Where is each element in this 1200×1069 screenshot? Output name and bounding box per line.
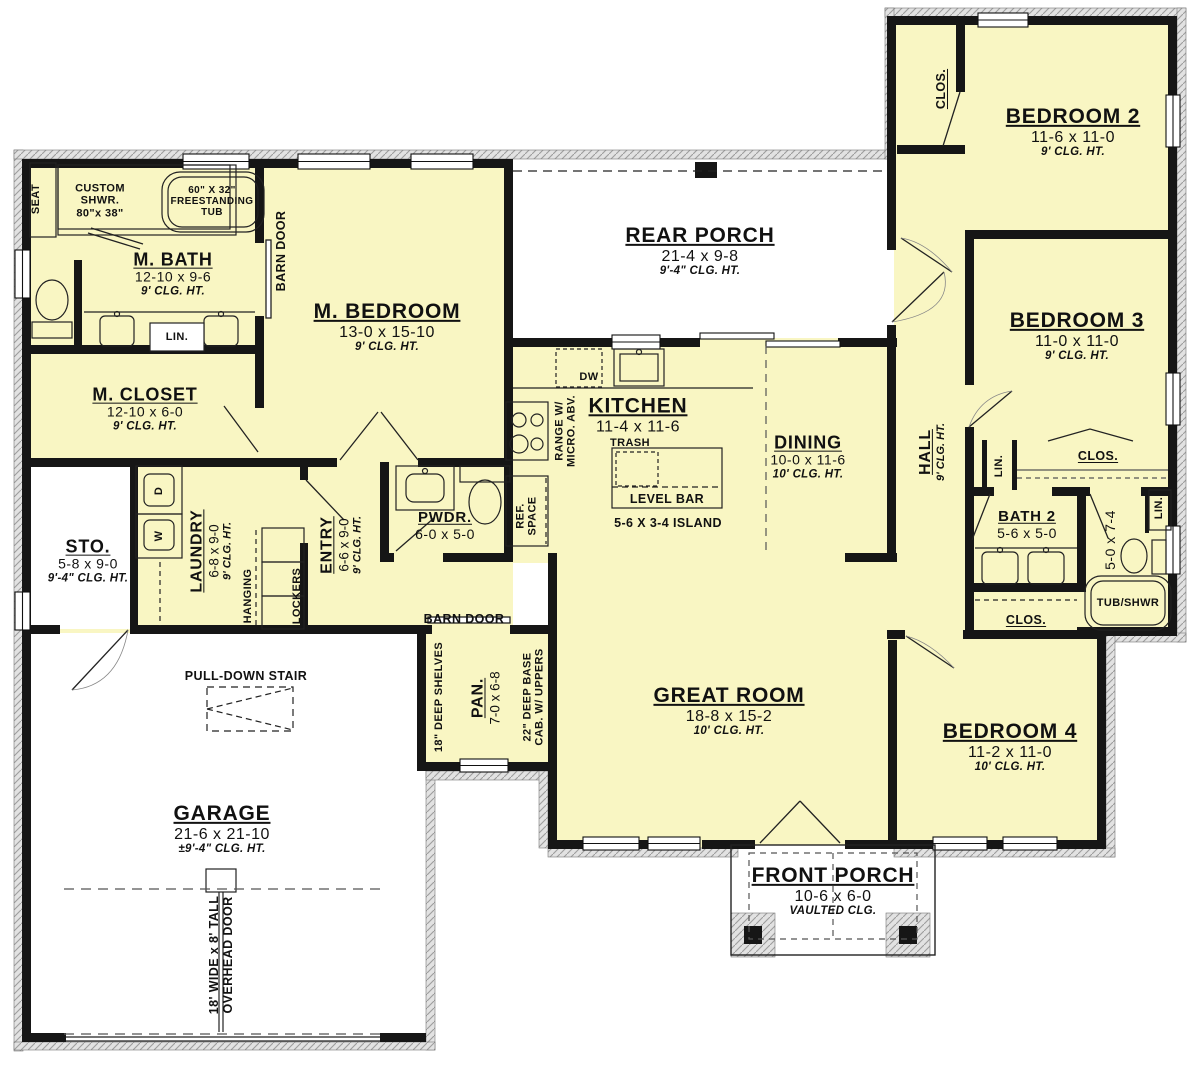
room-label-pan: PAN. 7-0 x 6-8 [469, 671, 502, 724]
tub-shwr-label: TUB/SHWR [1097, 597, 1159, 609]
linen-label-mbath: LIN. [166, 331, 188, 343]
room-label-sto: STO. 5-8 x 9-0 9'-4" CLG. HT. [48, 537, 129, 586]
seat-label: SEAT [30, 184, 42, 214]
room-label-hall: HALL 9' CLG. HT. [917, 423, 947, 481]
dishwasher-label: DW [579, 371, 598, 383]
pull-down-stair-label: PULL-DOWN STAIR [185, 669, 307, 683]
linen-label-bedroom3: LIN. [993, 455, 1005, 477]
room-label-dining: DINING 10-0 x 11-6 10' CLG. HT. [770, 433, 845, 482]
washer-label: W [153, 531, 165, 542]
window [460, 759, 508, 772]
window [583, 837, 639, 850]
barn-door-label-pan: BARN DOOR [424, 612, 505, 626]
window [1166, 526, 1180, 574]
island-label: 5-6 X 3-4 ISLAND [614, 516, 722, 530]
room-label-bedroom4: BEDROOM 4 11-2 x 11-0 10' CLG. HT. [943, 720, 1077, 774]
room-label-m-closet: M. CLOSET 12-10 x 6-0 9' CLG. HT. [92, 385, 197, 434]
tub-label: 60" X 32" FREESTANDING TUB [171, 185, 254, 219]
range-label: RANGE W/ MICRO. ABV. [554, 395, 579, 467]
room-label-garage: GARAGE 21-6 x 21-10 ±9'-4" CLG. HT. [174, 802, 271, 856]
hanging-label: HANGING [242, 569, 254, 624]
window [612, 335, 660, 349]
closet-label-bedroom2: CLOS. [934, 69, 948, 109]
window [978, 13, 1028, 27]
dryer-label: D [153, 487, 165, 495]
window [15, 592, 30, 630]
window [15, 250, 30, 298]
lockers-label: LOCKERS [291, 568, 303, 625]
level-bar-label: LEVEL BAR [630, 492, 704, 506]
window [1003, 837, 1057, 850]
trash-label: TRASH [610, 437, 650, 449]
overhead-door-label: 18' WIDE x 8' TALL OVERHEAD DOOR [207, 896, 235, 1015]
room-label-bath2: BATH 2 5-6 x 5-0 [997, 509, 1057, 541]
window [648, 837, 700, 850]
barn-door-panel-mbath [266, 240, 271, 318]
window [411, 154, 473, 169]
room-label-m-bedroom: M. BEDROOM 13-0 x 15-10 9' CLG. HT. [314, 300, 461, 354]
fridge-space-label: REF. SPACE [515, 496, 540, 535]
room-label-pwdr: PWDR. 6-0 x 5-0 [415, 510, 475, 542]
barn-door-label-mbath: BARN DOOR [274, 211, 288, 292]
room-label-m-bath: M. BATH 12-10 x 9-6 9' CLG. HT. [133, 250, 212, 299]
closet-label-bedroom3: CLOS. [1078, 449, 1118, 463]
linen-label-bath2: LIN. [1153, 497, 1165, 519]
window [1166, 95, 1180, 147]
room-label-entry: ENTRY 6-6 x 9-0 9' CLG. HT. [318, 516, 363, 574]
window [1166, 373, 1180, 425]
room-label-kitchen: KITCHEN 11-4 x 11-6 [589, 394, 688, 435]
rear-porch-post [695, 162, 717, 178]
window [298, 154, 370, 169]
base-cab-label: 22" DEEP BASE CAB. W/ UPPERS [522, 648, 547, 745]
floor-plan: M. BATH 12-10 x 9-6 9' CLG. HT. M. CLOSE… [0, 0, 1200, 1069]
window [933, 837, 987, 850]
room-label-laundry: LAUNDRY 6-8 x 9-0 9' CLG. HT. [188, 509, 233, 592]
room-label-front-porch: FRONT PORCH 10-6 x 6-0 VAULTED CLG. [752, 864, 915, 918]
room-label-rear-porch: REAR PORCH 21-4 x 9-8 9'-4" CLG. HT. [625, 224, 774, 278]
room-label-tub-room: 5-0 x 7-4 [1103, 510, 1119, 570]
shelves-label: 18" DEEP SHELVES [433, 642, 445, 752]
window [183, 154, 249, 169]
room-label-great-room: GREAT ROOM 18-8 x 15-2 10' CLG. HT. [653, 684, 804, 738]
custom-shower-label: CUSTOM SHWR. 80"x 38" [75, 183, 125, 220]
closet-label-bath2: CLOS. [1006, 613, 1046, 627]
room-label-bedroom2: BEDROOM 2 11-6 x 11-0 9' CLG. HT. [1006, 105, 1140, 159]
room-label-bedroom3: BEDROOM 3 11-0 x 11-0 9' CLG. HT. [1010, 309, 1144, 363]
